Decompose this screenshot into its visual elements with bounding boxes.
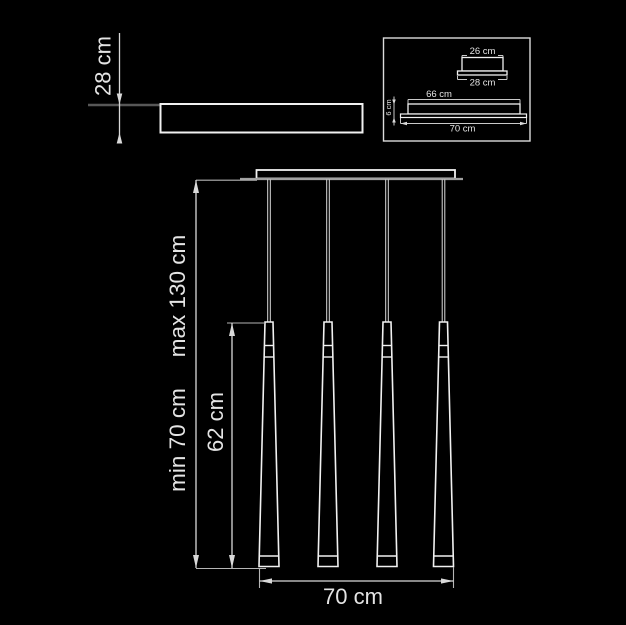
bar-body-width-label: 66 cm <box>426 89 452 100</box>
cone-length-label: 62 cm <box>203 392 228 452</box>
bar-body-outline <box>408 104 520 114</box>
canopy-base-width-label: 28 cm <box>470 78 496 89</box>
max-drop-label: max 130 cm <box>165 235 190 358</box>
pendant-cone <box>318 322 338 567</box>
pendant-cone <box>377 322 397 567</box>
arrow-up-icon <box>229 323 235 336</box>
overall-height-dimension: max 130 cm min 70 cm <box>165 180 266 569</box>
canopy-top-width-label: 26 cm <box>470 46 496 57</box>
overall-width-dimension: 70 cm <box>260 567 454 609</box>
arrow-up-icon <box>392 118 396 123</box>
detail-inset: 26 cm 28 cm 66 cm 70 cm <box>384 38 531 141</box>
arrow-down-icon <box>193 555 199 568</box>
min-drop-label: min 70 cm <box>165 388 190 492</box>
arrow-left-icon <box>260 578 273 583</box>
pendant-cone <box>434 322 454 567</box>
suspension-cable <box>386 180 389 323</box>
canopy-cross-section: 26 cm 28 cm <box>458 46 508 89</box>
canopy-base-plate-outline <box>458 71 508 75</box>
bar-base-plate-outline <box>401 114 527 118</box>
technical-drawing: 28 cm 26 cm 28 cm 66 cm <box>0 0 626 625</box>
arrow-right-icon <box>441 578 454 583</box>
canopy-plan-outline <box>161 104 363 133</box>
arrow-up-icon <box>193 180 199 193</box>
arrow-down-icon <box>117 94 123 105</box>
arrow-left-icon <box>401 122 408 125</box>
suspension-cable <box>442 180 445 323</box>
plan-height-label: 28 cm <box>91 36 116 96</box>
plan-height-dimension: 28 cm <box>91 33 123 144</box>
overall-width-label: 70 cm <box>323 584 383 609</box>
diagram-canvas: 28 cm 26 cm 28 cm 66 cm <box>0 0 626 625</box>
ceiling-canopy-outline <box>257 170 456 179</box>
suspension-cable <box>268 180 271 323</box>
suspension-cable <box>327 180 330 323</box>
arrow-up-icon <box>117 133 123 144</box>
cone-length-dimension: 62 cm <box>203 323 265 568</box>
front-view: max 130 cm min 70 cm 62 cm 70 cm <box>165 170 463 609</box>
bar-base-width-label: 70 cm <box>450 124 476 135</box>
arrow-right-icon <box>520 122 527 125</box>
bar-height-label: 6 cm <box>384 99 393 115</box>
canopy-body-outline <box>462 58 503 72</box>
pendant-cone <box>259 322 279 567</box>
arrow-down-icon <box>229 555 235 568</box>
bar-cross-section: 66 cm 70 cm 6 cm <box>384 89 527 135</box>
plan-view: 28 cm <box>88 33 363 144</box>
